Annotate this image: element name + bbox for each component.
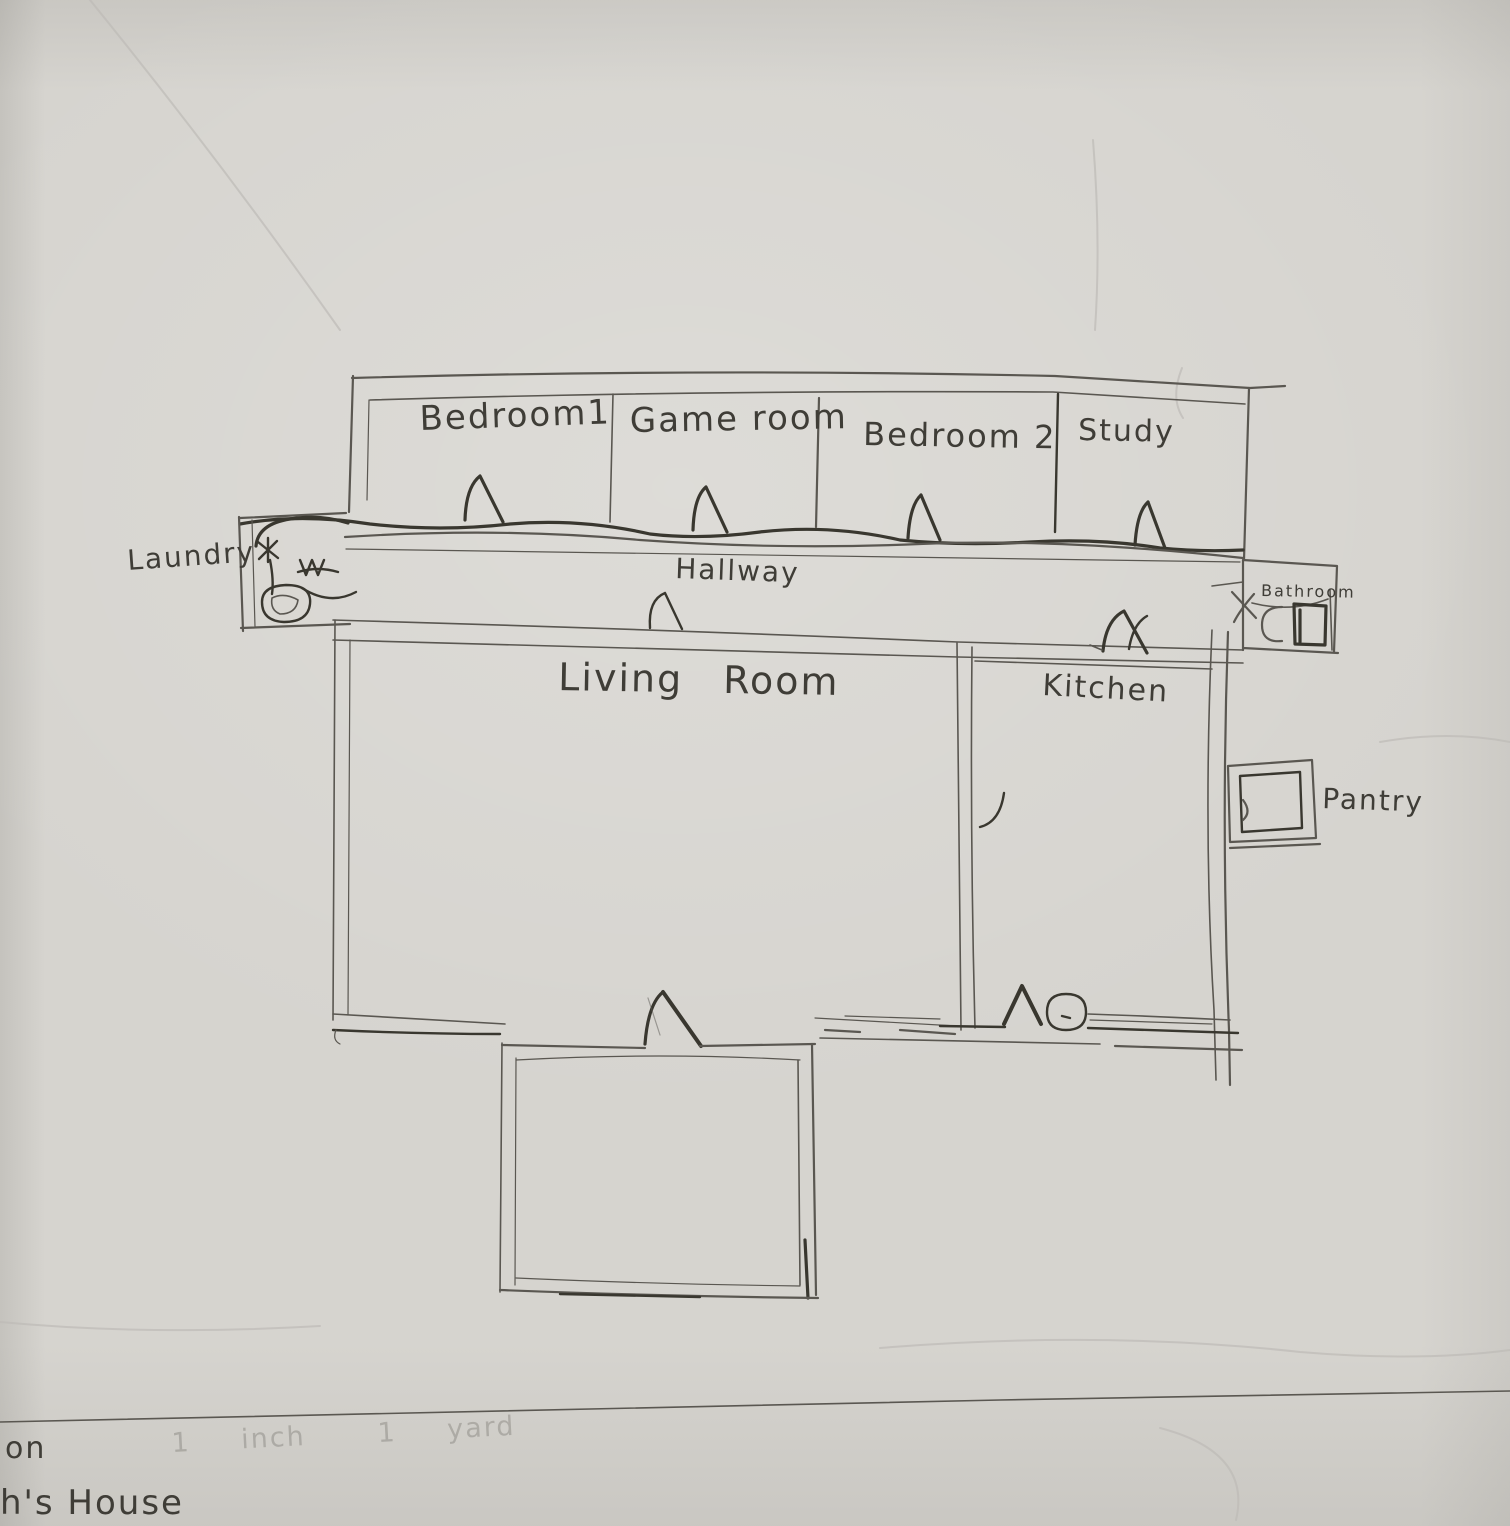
- door-arc-game-room: [693, 487, 727, 532]
- paper-creases: [0, 0, 1510, 1520]
- room-labels: Bedroom1 Game room Bedroom 2 Study Laund…: [126, 392, 1424, 818]
- laundry-basin-oval: [262, 585, 310, 622]
- scratch-top-right: [1176, 368, 1183, 418]
- living-wall-bottom-right-ticks: [825, 1030, 955, 1034]
- porch-wall-top-inner: [516, 1056, 800, 1060]
- pantry-wall-inner: [1240, 772, 1302, 832]
- floor-plan-sketch-photo: Bedroom1 Game room Bedroom 2 Study Laund…: [0, 0, 1510, 1526]
- wall-right: [1244, 388, 1249, 560]
- kitchen-bottom-connector: [1088, 1014, 1230, 1020]
- crease-top-left: [90, 0, 340, 330]
- footer-scale-fragment-1: 1 inch: [171, 1421, 307, 1459]
- porch-wall-left-outer: [500, 1043, 502, 1292]
- room-label-bathroom: Bathroom: [1261, 581, 1356, 602]
- door-arc-hallway: [650, 593, 682, 629]
- porch-wall-right-outer: [812, 1044, 816, 1295]
- footer-fragment-line1: on: [5, 1431, 46, 1466]
- laundry-scribble-washer: [298, 560, 338, 575]
- crease-right: [1380, 736, 1510, 742]
- room-label-laundry: Laundry: [126, 535, 256, 577]
- living-wall-left-outer: [333, 620, 335, 1020]
- laundry-wall-left-outer: [239, 517, 243, 631]
- kitchen-walls: [820, 630, 1242, 1085]
- bedroom-door-swings: [465, 476, 1165, 548]
- kitchen-wall-right-inner: [1208, 630, 1216, 1080]
- pantry-door-arc: [1243, 800, 1248, 820]
- footer-rule-line: [0, 1391, 1510, 1422]
- bathroom-room: [1212, 560, 1338, 653]
- porch-room: [500, 1043, 818, 1298]
- pantry-bottom-extra-line: [1230, 844, 1320, 848]
- floor-plan-svg: Bedroom1 Game room Bedroom 2 Study Laund…: [0, 0, 1510, 1526]
- living-wall-bottom-left-1: [333, 1014, 505, 1024]
- kitchen-divider-inner: [971, 647, 975, 1028]
- porch-wall-right-dark: [805, 1240, 808, 1298]
- footer-scale-fragment-2: 1 yard: [377, 1411, 516, 1449]
- kitchen-divider-outer: [957, 643, 961, 1030]
- crease-upper-middle: [1093, 140, 1098, 330]
- porch-wall-bottom-dark: [560, 1294, 700, 1297]
- porch-wall-left-inner: [515, 1058, 516, 1285]
- porch-wall-bottom-inner: [516, 1278, 800, 1286]
- room-label-game-room: Game room: [629, 397, 848, 441]
- crease-bottom-right: [1160, 1428, 1238, 1520]
- kitchen-bottom-dark: [940, 1026, 1238, 1033]
- bathroom-sink: [1294, 604, 1326, 645]
- room-label-bedroom2: Bedroom 2: [863, 415, 1057, 456]
- porch-wall-top: [502, 1044, 815, 1048]
- kitchen-wall-right-outer: [1225, 632, 1230, 1085]
- hallway-top-second-line: [345, 533, 1243, 558]
- room-label-kitchen: Kitchen: [1042, 668, 1170, 710]
- wall-left-outer: [349, 376, 353, 512]
- room-label-bedroom1: Bedroom1: [419, 392, 612, 439]
- room-label-hallway: Hallway: [675, 552, 800, 589]
- laundry-wall-bottom: [241, 624, 350, 628]
- door-swing-kitchen-bottom: [1004, 986, 1041, 1024]
- crease-bottom-wide: [880, 1340, 1510, 1357]
- divider-bedroom2-study: [1055, 394, 1058, 532]
- door-arc-bedroom2: [908, 495, 940, 540]
- kitchen-bottom-lower-2: [1115, 1046, 1242, 1050]
- door-arc-bedroom1: [465, 476, 503, 522]
- room-label-study: Study: [1078, 413, 1175, 450]
- porch-wall-right-inner: [798, 1060, 800, 1285]
- wall-left-inner: [367, 400, 369, 500]
- bathroom-stub: [1212, 582, 1243, 586]
- door-arc-hallway-kitchen-2: [1129, 616, 1147, 649]
- pantry-room: [1228, 760, 1320, 848]
- kitchen-bottom-lower-1: [820, 1038, 1100, 1044]
- living-wall-left-inner: [348, 640, 350, 1015]
- bathroom-toilet: [1262, 607, 1282, 641]
- hallway-walls: [240, 519, 1243, 664]
- door-arc-kitchen-interior: [980, 793, 1004, 827]
- laundry-room: [239, 513, 356, 631]
- footer-texts: on h's House 1 inch 1 yard: [0, 1411, 516, 1523]
- room-label-living-room: Living Room: [558, 655, 840, 704]
- living-wall-bottom-left-2: [333, 1030, 500, 1034]
- crease-bottom-left: [0, 1322, 320, 1330]
- footer-fragment-line2: h's House: [0, 1483, 184, 1523]
- laundry-asterisk-mark: [258, 538, 278, 562]
- kitchen-door-knob-circle: [1047, 994, 1086, 1030]
- living-corner-hook: [335, 1030, 340, 1044]
- door-arc-study: [1135, 502, 1165, 548]
- laundry-basin-inner: [272, 595, 298, 614]
- room-label-pantry: Pantry: [1322, 782, 1425, 819]
- door-leaf-living-entry: [663, 992, 701, 1046]
- wall-top-outer: [352, 372, 1285, 388]
